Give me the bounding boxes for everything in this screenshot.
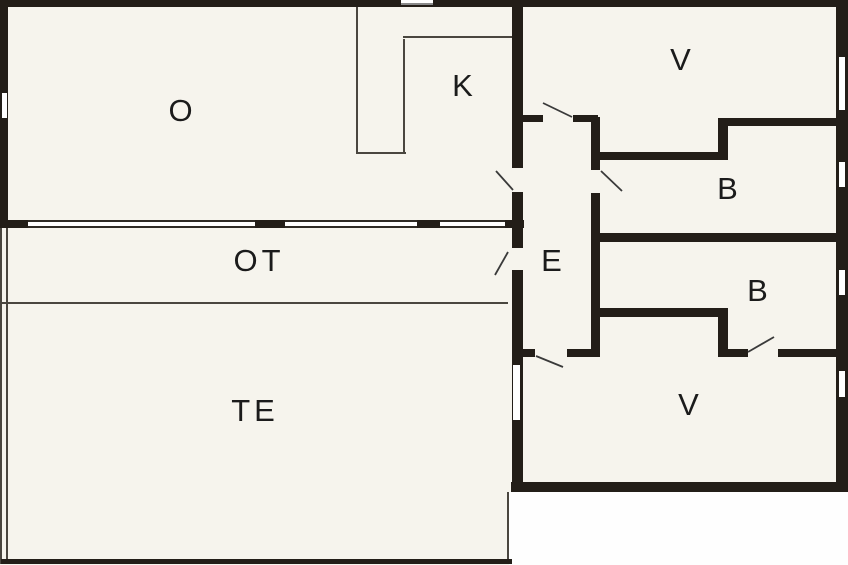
- window-o-ot-1: [28, 220, 255, 228]
- floor-plan: O K V B E B V OT TE: [0, 0, 848, 565]
- wall-o-bottom-seg3: [417, 220, 440, 228]
- partition-k-bottom: [356, 152, 406, 154]
- boundary-te-right: [507, 492, 509, 562]
- window-right-v-upper: [839, 57, 845, 110]
- boundary-ot-te: [2, 302, 508, 304]
- wall-b-b-divider: [598, 233, 848, 242]
- room-label-b-upper: B: [717, 171, 739, 207]
- top-wall-vent-notch: [401, 0, 433, 5]
- partition-k-top: [403, 36, 512, 38]
- door-swing-b-lower: [748, 337, 774, 352]
- room-label-e: E: [541, 243, 563, 279]
- wall-bv-lower-seg1: [718, 349, 748, 357]
- room-label-te: TE: [231, 393, 279, 429]
- wall-o-bottom-seg1: [0, 220, 28, 228]
- window-left-o: [2, 93, 7, 118]
- wall-bv-lower-seg2: [778, 349, 848, 357]
- window-o-ot-2: [285, 220, 417, 228]
- door-opening-e-b: [591, 170, 600, 193]
- window-te-v: [513, 365, 520, 420]
- wall-e-bottom-seg1: [523, 349, 535, 357]
- wall-e-top-seg1: [523, 115, 543, 122]
- partition-k-inner: [403, 39, 405, 154]
- room-label-v-lower: V: [678, 387, 700, 423]
- wall-vb-upper-right: [727, 118, 848, 126]
- room-te: [8, 304, 507, 559]
- wall-e-bottom-seg2: [567, 349, 598, 357]
- window-right-v-lower: [839, 371, 845, 397]
- boundary-te-bottom: [1, 559, 512, 564]
- room-label-v-upper: V: [670, 42, 692, 78]
- wall-bv-lower-left: [598, 308, 728, 317]
- outside-area: [509, 492, 848, 565]
- room-k: [359, 7, 512, 152]
- room-label-o: O: [168, 93, 193, 129]
- window-right-b-upper: [839, 162, 845, 187]
- wall-vb-upper-left: [598, 152, 728, 160]
- boundary-left-inner: [6, 228, 8, 564]
- door-opening-k-e: [512, 168, 523, 192]
- room-label-ot: OT: [233, 243, 284, 279]
- room-b-lower: [600, 242, 836, 308]
- partition-k-left: [356, 7, 358, 154]
- door-opening-ot-e: [512, 248, 523, 270]
- window-right-b-lower: [839, 270, 845, 295]
- exterior-wall-bottom-v: [511, 482, 848, 492]
- window-o-ot-3: [440, 220, 505, 228]
- room-label-k: K: [452, 68, 474, 104]
- wall-o-bottom-seg2: [255, 220, 285, 228]
- room-e: [523, 122, 591, 349]
- room-label-b-lower: B: [747, 273, 769, 309]
- boundary-left-outer: [0, 228, 2, 564]
